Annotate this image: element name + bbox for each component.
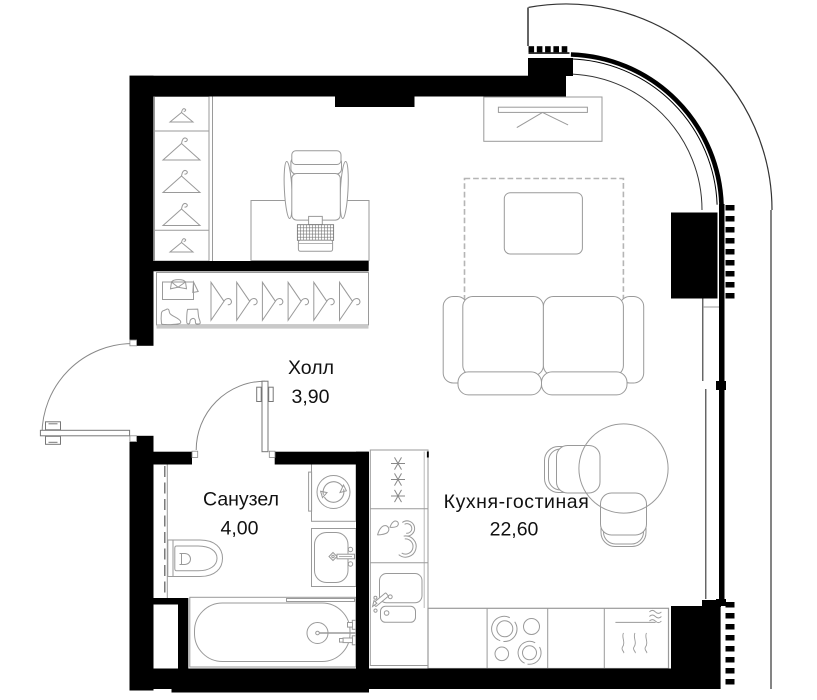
svg-text:Санузел: Санузел xyxy=(203,489,279,511)
svg-text:4,00: 4,00 xyxy=(221,518,259,540)
svg-text:3,90: 3,90 xyxy=(292,386,330,408)
svg-text:Кухня-гостиная: Кухня-гостиная xyxy=(444,491,590,513)
svg-text:Холл: Холл xyxy=(288,357,334,379)
svg-text:22,60: 22,60 xyxy=(490,519,539,541)
